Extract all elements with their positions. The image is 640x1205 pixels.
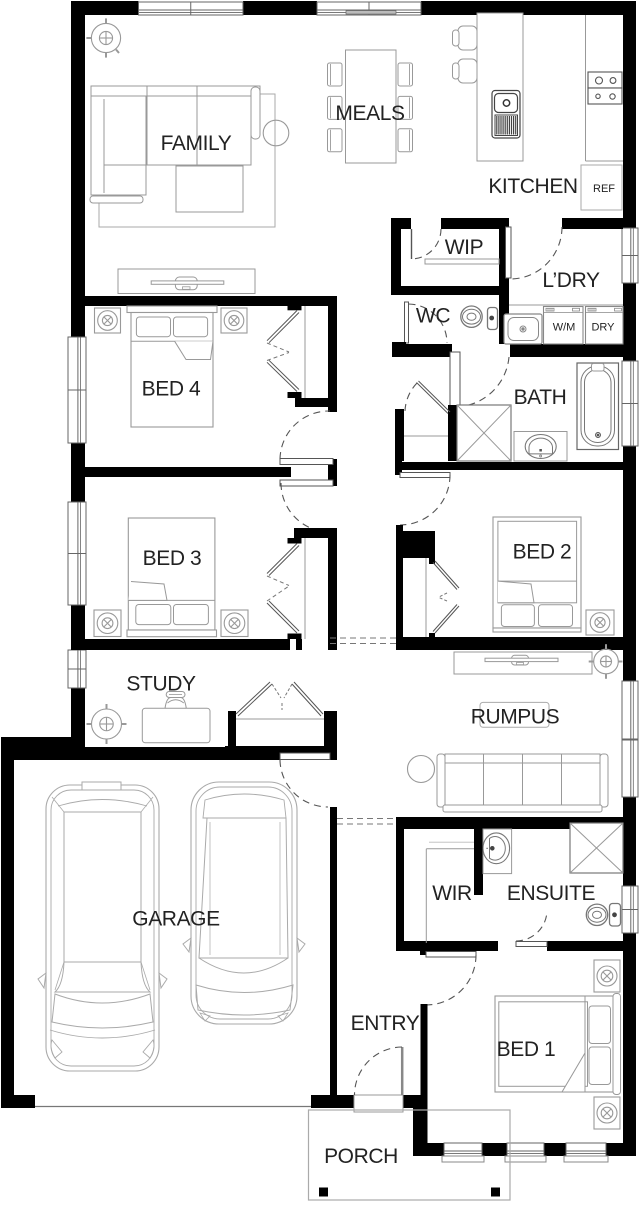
svg-text:BED 3: BED 3 bbox=[143, 547, 202, 570]
svg-text:GARAGE: GARAGE bbox=[132, 908, 220, 931]
svg-text:W/M: W/M bbox=[553, 322, 576, 334]
svg-text:ENTRY: ENTRY bbox=[351, 1012, 420, 1035]
svg-text:WC: WC bbox=[416, 305, 450, 328]
svg-text:L’DRY: L’DRY bbox=[542, 269, 600, 292]
svg-text:KITCHEN: KITCHEN bbox=[488, 175, 577, 198]
svg-text:WIP: WIP bbox=[445, 236, 483, 259]
svg-text:BATH: BATH bbox=[514, 386, 567, 409]
svg-text:MEALS: MEALS bbox=[335, 102, 405, 125]
svg-text:BED 2: BED 2 bbox=[513, 541, 572, 564]
svg-text:ENSUITE: ENSUITE bbox=[507, 882, 596, 905]
svg-text:RUMPUS: RUMPUS bbox=[471, 706, 560, 729]
svg-text:REF: REF bbox=[593, 183, 615, 195]
svg-text:WIR: WIR bbox=[432, 882, 472, 905]
svg-text:STUDY: STUDY bbox=[126, 673, 196, 696]
svg-text:PORCH: PORCH bbox=[324, 1145, 398, 1168]
svg-text:BED 4: BED 4 bbox=[142, 378, 201, 401]
svg-text:DRY: DRY bbox=[591, 322, 615, 334]
svg-text:BED 1: BED 1 bbox=[497, 1038, 556, 1061]
svg-text:FAMILY: FAMILY bbox=[161, 132, 232, 155]
